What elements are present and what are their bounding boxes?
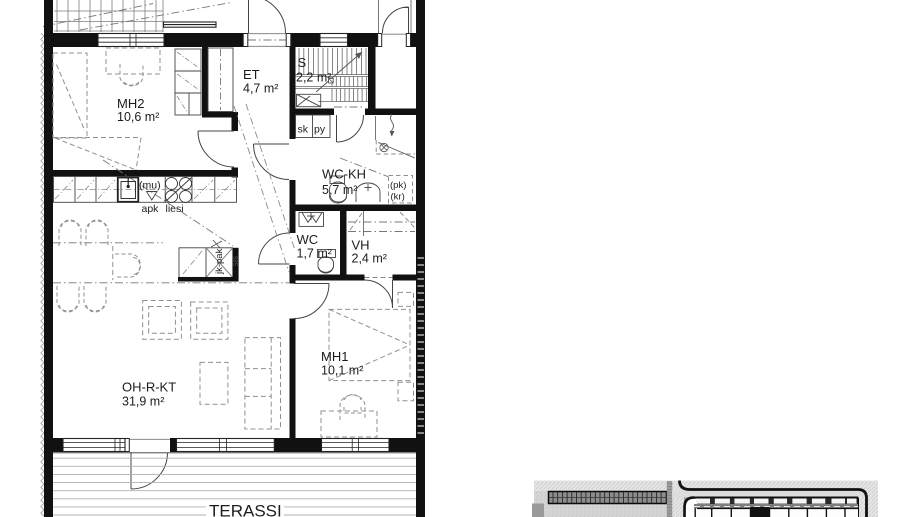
svg-text:31,9 m²: 31,9 m² xyxy=(122,395,164,409)
svg-text:WC-KH: WC-KH xyxy=(322,167,366,182)
svg-text:MH1: MH1 xyxy=(321,349,348,364)
svg-text:VH: VH xyxy=(352,238,370,253)
svg-text:ET: ET xyxy=(243,67,260,82)
svg-text:5,7 m²: 5,7 m² xyxy=(322,183,357,197)
svg-text:sk: sk xyxy=(298,124,309,136)
svg-text:jk-pak: jk-pak xyxy=(214,248,225,275)
svg-text:liesi: liesi xyxy=(166,203,184,215)
svg-text:OH-R-KT: OH-R-KT xyxy=(122,380,176,395)
svg-text:TERASSI: TERASSI xyxy=(209,502,282,517)
svg-text:2,2 m²: 2,2 m² xyxy=(296,71,331,85)
svg-text:2,4 m²: 2,4 m² xyxy=(352,252,387,266)
svg-text:S: S xyxy=(298,55,307,70)
svg-text:1,7 m²: 1,7 m² xyxy=(297,247,332,261)
svg-text:10,1 m²: 10,1 m² xyxy=(321,364,363,378)
svg-text:(mu): (mu) xyxy=(139,180,161,192)
svg-text:4,7 m²: 4,7 m² xyxy=(243,82,278,96)
svg-text:(pk): (pk) xyxy=(390,180,406,191)
svg-text:MH2: MH2 xyxy=(117,96,144,111)
svg-text:WC: WC xyxy=(297,232,319,247)
svg-text:apk: apk xyxy=(142,203,160,215)
svg-text:py: py xyxy=(314,124,326,136)
svg-text:(kr): (kr) xyxy=(391,192,405,203)
svg-text:10,6 m²: 10,6 m² xyxy=(117,110,159,124)
svg-text:585: 585 xyxy=(234,255,240,266)
